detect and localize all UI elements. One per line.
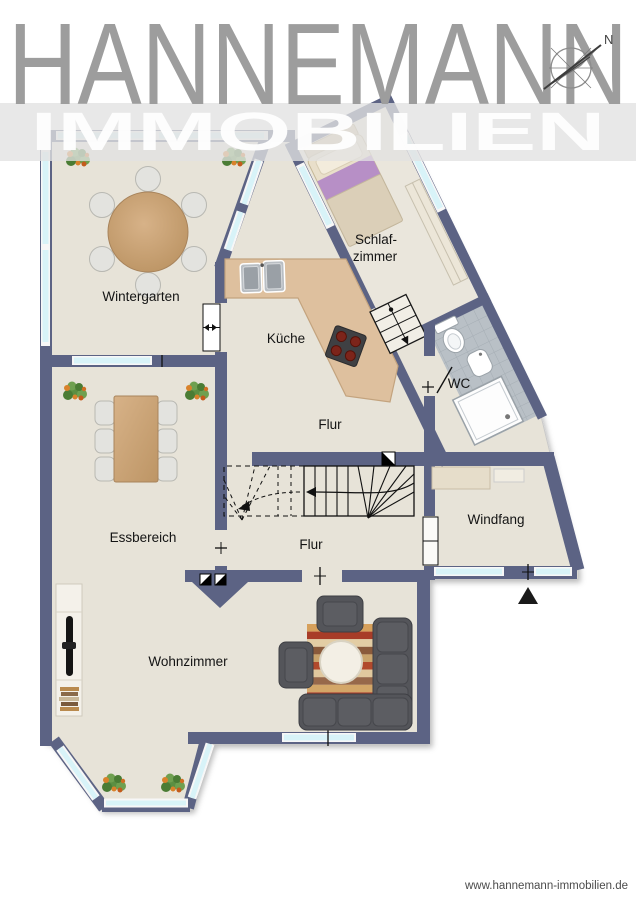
room-label-wintergarten: Wintergarten xyxy=(102,289,179,304)
room-label-windfang: Windfang xyxy=(467,512,524,527)
book-stack xyxy=(59,687,79,711)
room-label-flur-lower: Flur xyxy=(299,537,323,552)
room-label-wc: WC xyxy=(448,376,471,391)
essbereich-dining-set xyxy=(95,396,177,482)
compass-north-label: N xyxy=(604,32,613,47)
wintergarten-window-left xyxy=(41,150,50,346)
tv-sideboard xyxy=(56,584,82,716)
brand-name: HANNEMANN xyxy=(8,0,628,129)
wc-door-gap xyxy=(424,356,435,396)
wall-stairs-windfang-top xyxy=(252,452,554,466)
room-label-kueche: Küche xyxy=(267,331,305,346)
floorplan: Wintergarten Schlaf- zimmer Küche WC Flu… xyxy=(40,94,578,810)
floorplan-page: Wintergarten Schlaf- zimmer Küche WC Flu… xyxy=(0,0,636,900)
sliding-door-symbol xyxy=(203,304,220,351)
coffee-table xyxy=(320,641,362,683)
corner-marker-stairs xyxy=(382,452,395,465)
floorplan-canvas: Wintergarten Schlaf- zimmer Küche WC Flu… xyxy=(0,0,636,900)
room-label-flur-upper: Flur xyxy=(318,417,342,432)
wall-wohnzimmer-top-right xyxy=(342,570,430,582)
wall-wohnzimmer-right xyxy=(417,579,430,744)
entrance-arrow-icon xyxy=(518,587,538,604)
windfang-door-symbol xyxy=(423,517,438,565)
room-label-schlafzimmer-1: Schlaf- xyxy=(355,232,397,247)
website-link: www.hannemann-immobilien.de xyxy=(464,880,628,892)
room-label-essbereich: Essbereich xyxy=(110,530,177,545)
room-label-schlafzimmer-2: zimmer xyxy=(353,249,398,264)
room-label-wohnzimmer: Wohnzimmer xyxy=(148,654,228,669)
